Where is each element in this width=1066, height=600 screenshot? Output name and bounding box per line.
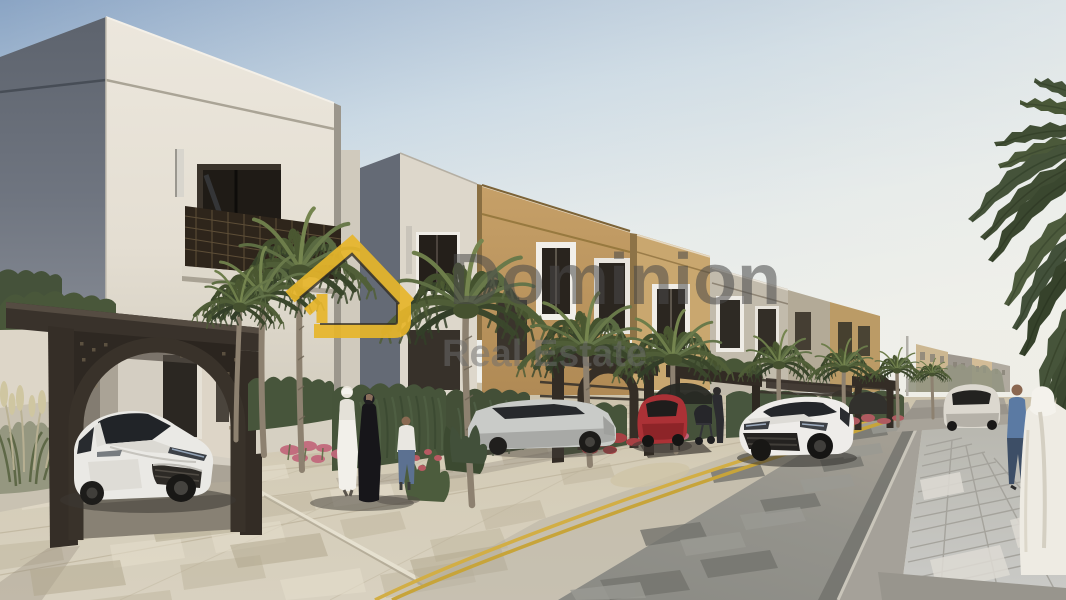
svg-text:Dominion: Dominion — [449, 240, 781, 320]
svg-text:Real Estate: Real Estate — [442, 333, 647, 375]
